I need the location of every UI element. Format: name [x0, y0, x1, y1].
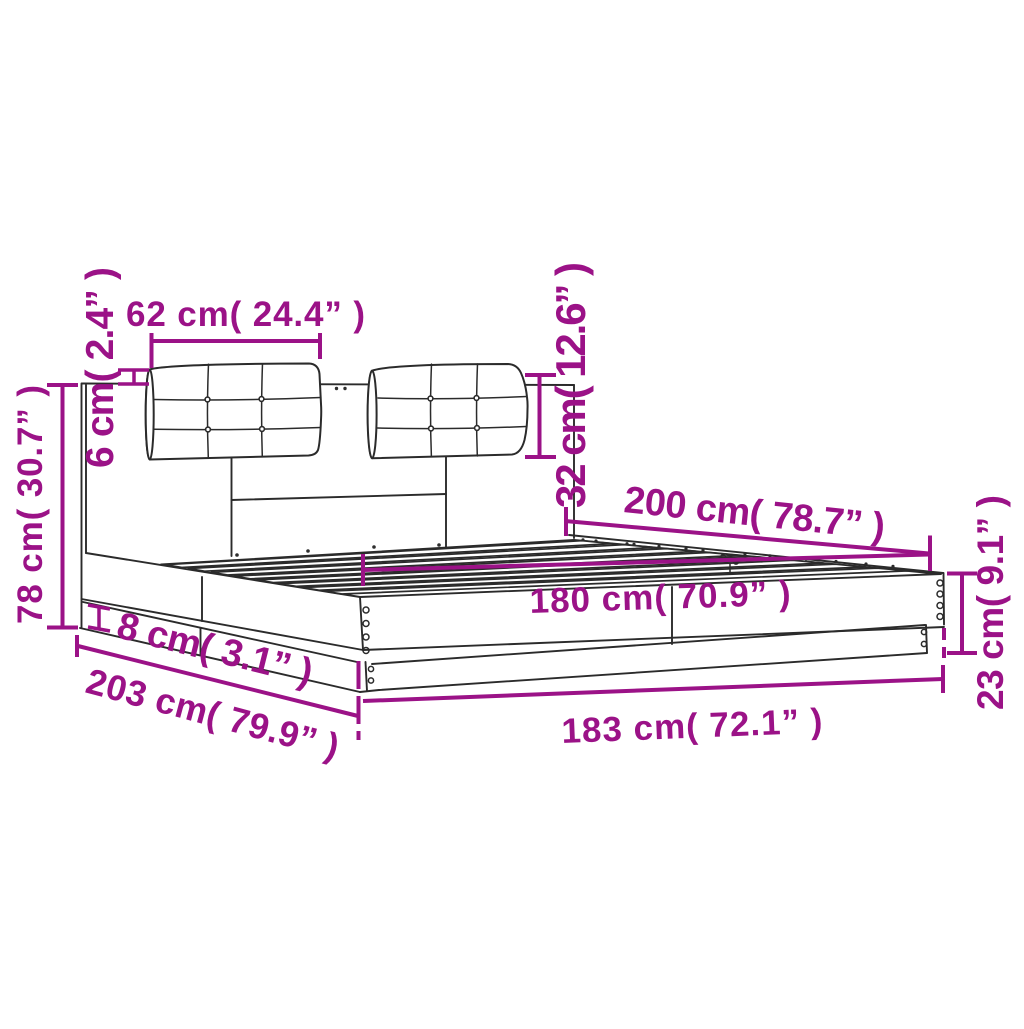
svg-text:62 cm( 24.4” ): 62 cm( 24.4” ): [126, 295, 365, 334]
svg-text:32 cm( 12.6” ): 32 cm( 12.6” ): [547, 262, 594, 508]
svg-text:6 cm( 2.4” ): 6 cm( 2.4” ): [79, 267, 122, 468]
svg-text:180 cm( 70.9” ): 180 cm( 70.9” ): [529, 574, 791, 621]
svg-text:23 cm( 9.1” ): 23 cm( 9.1” ): [970, 495, 1011, 710]
svg-text:78 cm( 30.7” ): 78 cm( 30.7” ): [11, 385, 50, 624]
